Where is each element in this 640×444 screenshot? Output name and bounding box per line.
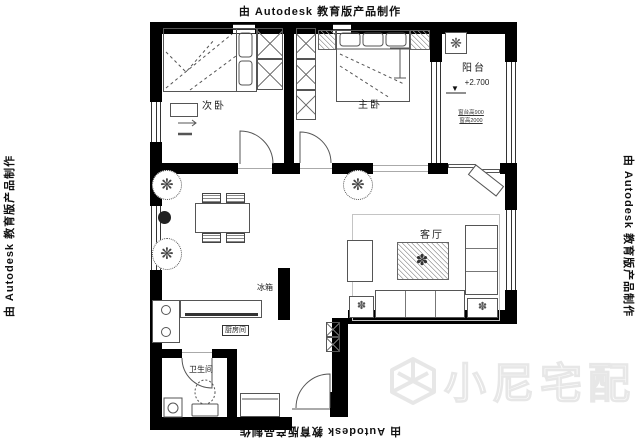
- pillow: [340, 33, 360, 46]
- balcony-note-1: 窗台高900: [448, 110, 494, 117]
- door-arc-entry: [296, 374, 330, 408]
- floor-lamp: [390, 48, 410, 78]
- pillow: [363, 33, 383, 46]
- pillow: [239, 61, 252, 85]
- lineart-overlay: [0, 0, 640, 444]
- master-bed: [337, 31, 410, 102]
- pillow: [239, 33, 252, 57]
- floorplan-canvas: 由 Autodesk 教育版产品制作 由 Autodesk 教育版产品制作 由 …: [0, 0, 640, 444]
- toilet-tank: [192, 404, 218, 416]
- room-label-living: 客厅: [413, 226, 451, 241]
- washbasin-bowl: [168, 403, 178, 413]
- room-label-bedroom2: 次卧: [190, 97, 238, 112]
- master-bed-blanket-lines: [340, 54, 404, 98]
- washbasin: [164, 398, 182, 417]
- stove-icon: [162, 328, 171, 337]
- bed2: [164, 29, 257, 92]
- balcony-elevation-value: +2.700: [458, 78, 496, 87]
- bed2-fold: [166, 40, 214, 72]
- desk-arrow: [178, 120, 196, 126]
- room-label-bathroom: 卫生间: [183, 364, 219, 375]
- elevation-triangle-icon: ▼: [448, 84, 462, 93]
- pillow: [386, 33, 406, 46]
- room-label-master-bedroom: 主卧: [348, 96, 392, 111]
- label-fridge: 冰箱: [250, 282, 280, 293]
- door-arc-master: [300, 132, 331, 163]
- balcony-note-2: 窗高2000: [448, 118, 494, 125]
- door-arc-bedroom2: [240, 131, 273, 164]
- sink-icon: [162, 306, 171, 315]
- label-kitchen: 厨房间: [222, 325, 249, 336]
- room-label-balcony: 阳台: [456, 59, 492, 74]
